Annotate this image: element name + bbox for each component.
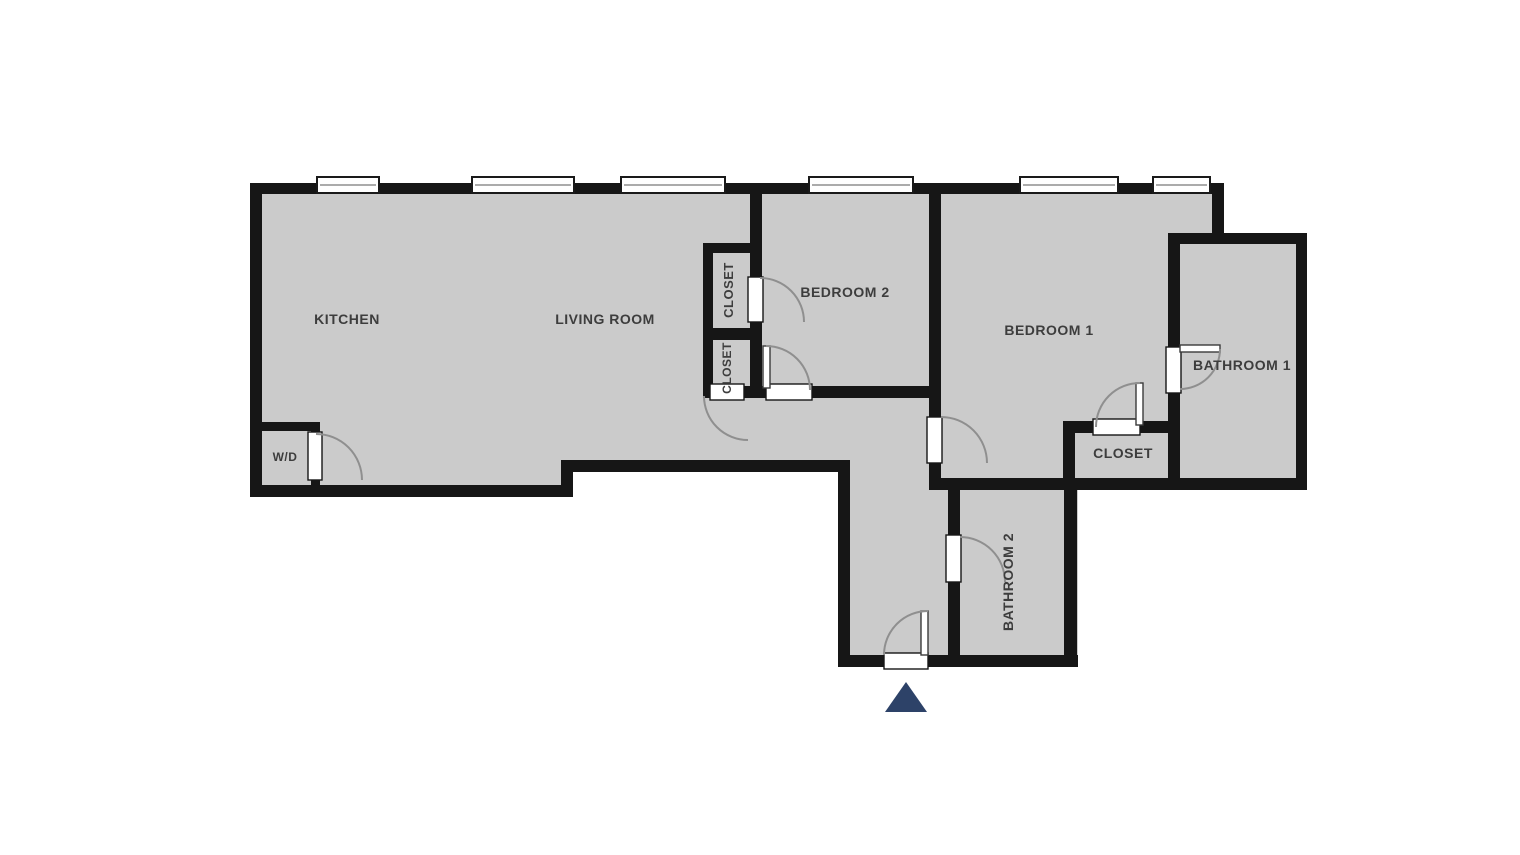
room-label-kitchen: KITCHEN bbox=[314, 311, 380, 327]
room-label-closet-top: CLOSET bbox=[721, 262, 736, 318]
wall-bottom-long bbox=[929, 478, 1307, 490]
wall-hall-left bbox=[838, 460, 850, 667]
bedroom1-closet-door-leaf bbox=[1136, 383, 1143, 425]
bathroom2-door-gap bbox=[946, 535, 961, 582]
wall-closets-left bbox=[703, 243, 713, 398]
room-label-bathroom-2: BATHROOM 2 bbox=[1000, 533, 1016, 631]
room-label-bedroom-1: BEDROOM 1 bbox=[1004, 322, 1093, 338]
floorplan-svg: KITCHENLIVING ROOMBEDROOM 2BEDROOM 1BATH… bbox=[0, 0, 1520, 855]
room-label-closet-bottom: CLOSET bbox=[720, 342, 734, 394]
closet-top-door-gap bbox=[748, 277, 763, 322]
room-label-bathroom-1: BATHROOM 1 bbox=[1193, 357, 1291, 373]
wall-bedroom1-closet-left bbox=[1063, 421, 1075, 490]
entry-door-leaf bbox=[921, 611, 928, 655]
entry-arrow bbox=[885, 682, 927, 712]
wall-bathroom1-right bbox=[1296, 233, 1307, 490]
room-label-wd: W/D bbox=[273, 450, 298, 464]
bathroom1-door-gap bbox=[1166, 347, 1181, 393]
room-label-living-room: LIVING ROOM bbox=[555, 311, 655, 327]
wall-outer-right-upper bbox=[1212, 183, 1224, 239]
bathroom1-door-leaf bbox=[1180, 345, 1220, 352]
bedroom2-door-leaf bbox=[763, 346, 770, 388]
wall-wd-top bbox=[250, 422, 320, 431]
wall-living-bottom-right bbox=[561, 460, 850, 472]
wall-outer-left bbox=[250, 183, 262, 497]
bedroom2-door-gap bbox=[766, 384, 812, 400]
wd-door-gap bbox=[308, 432, 322, 480]
wall-bathroom2-right bbox=[1064, 478, 1077, 667]
bedroom1-closet-door-gap bbox=[1093, 419, 1140, 435]
floorplan-canvas: KITCHENLIVING ROOMBEDROOM 2BEDROOM 1BATH… bbox=[0, 0, 1520, 855]
wall-bathroom1-top bbox=[1168, 233, 1307, 244]
room-label-closet-bedroom1: CLOSET bbox=[1093, 445, 1153, 461]
room-label-bedroom-2: BEDROOM 2 bbox=[800, 284, 889, 300]
wall-living-bottom-left bbox=[250, 485, 573, 497]
bedroom1-door-gap bbox=[927, 417, 942, 463]
